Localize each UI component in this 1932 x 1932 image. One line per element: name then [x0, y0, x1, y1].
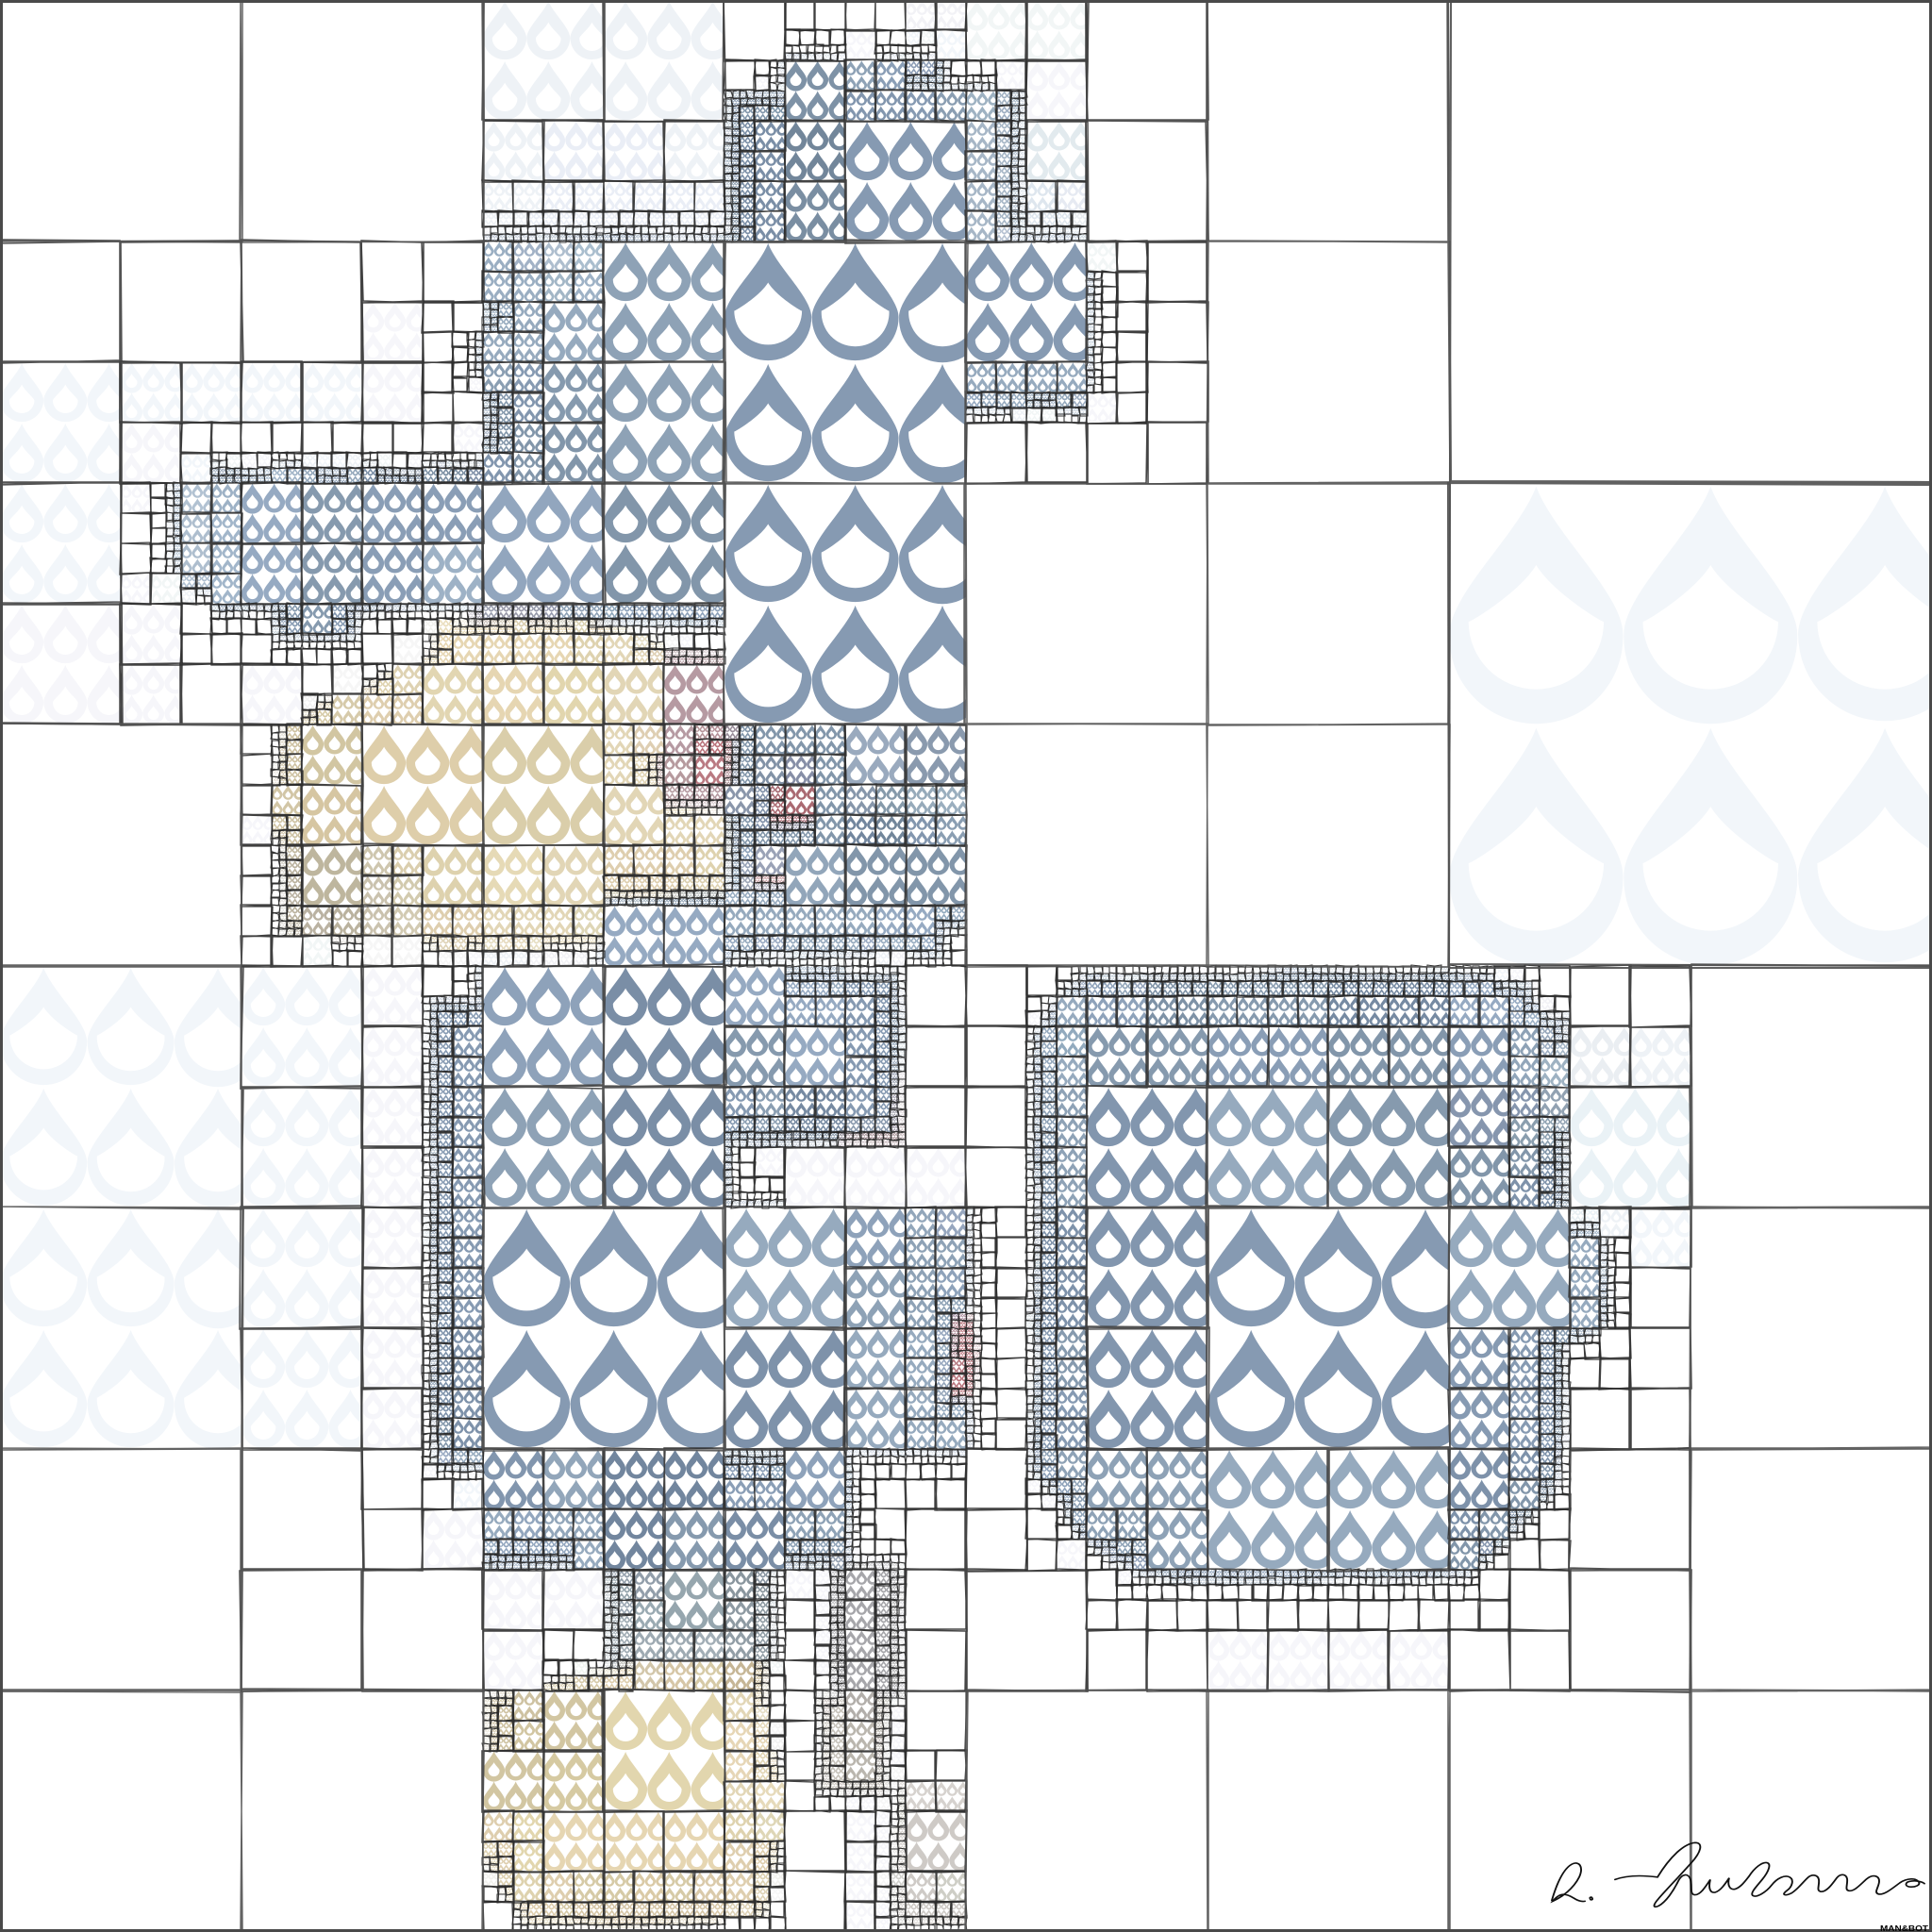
svg-text:MAN&BOT: MAN&BOT: [1880, 1924, 1929, 1932]
